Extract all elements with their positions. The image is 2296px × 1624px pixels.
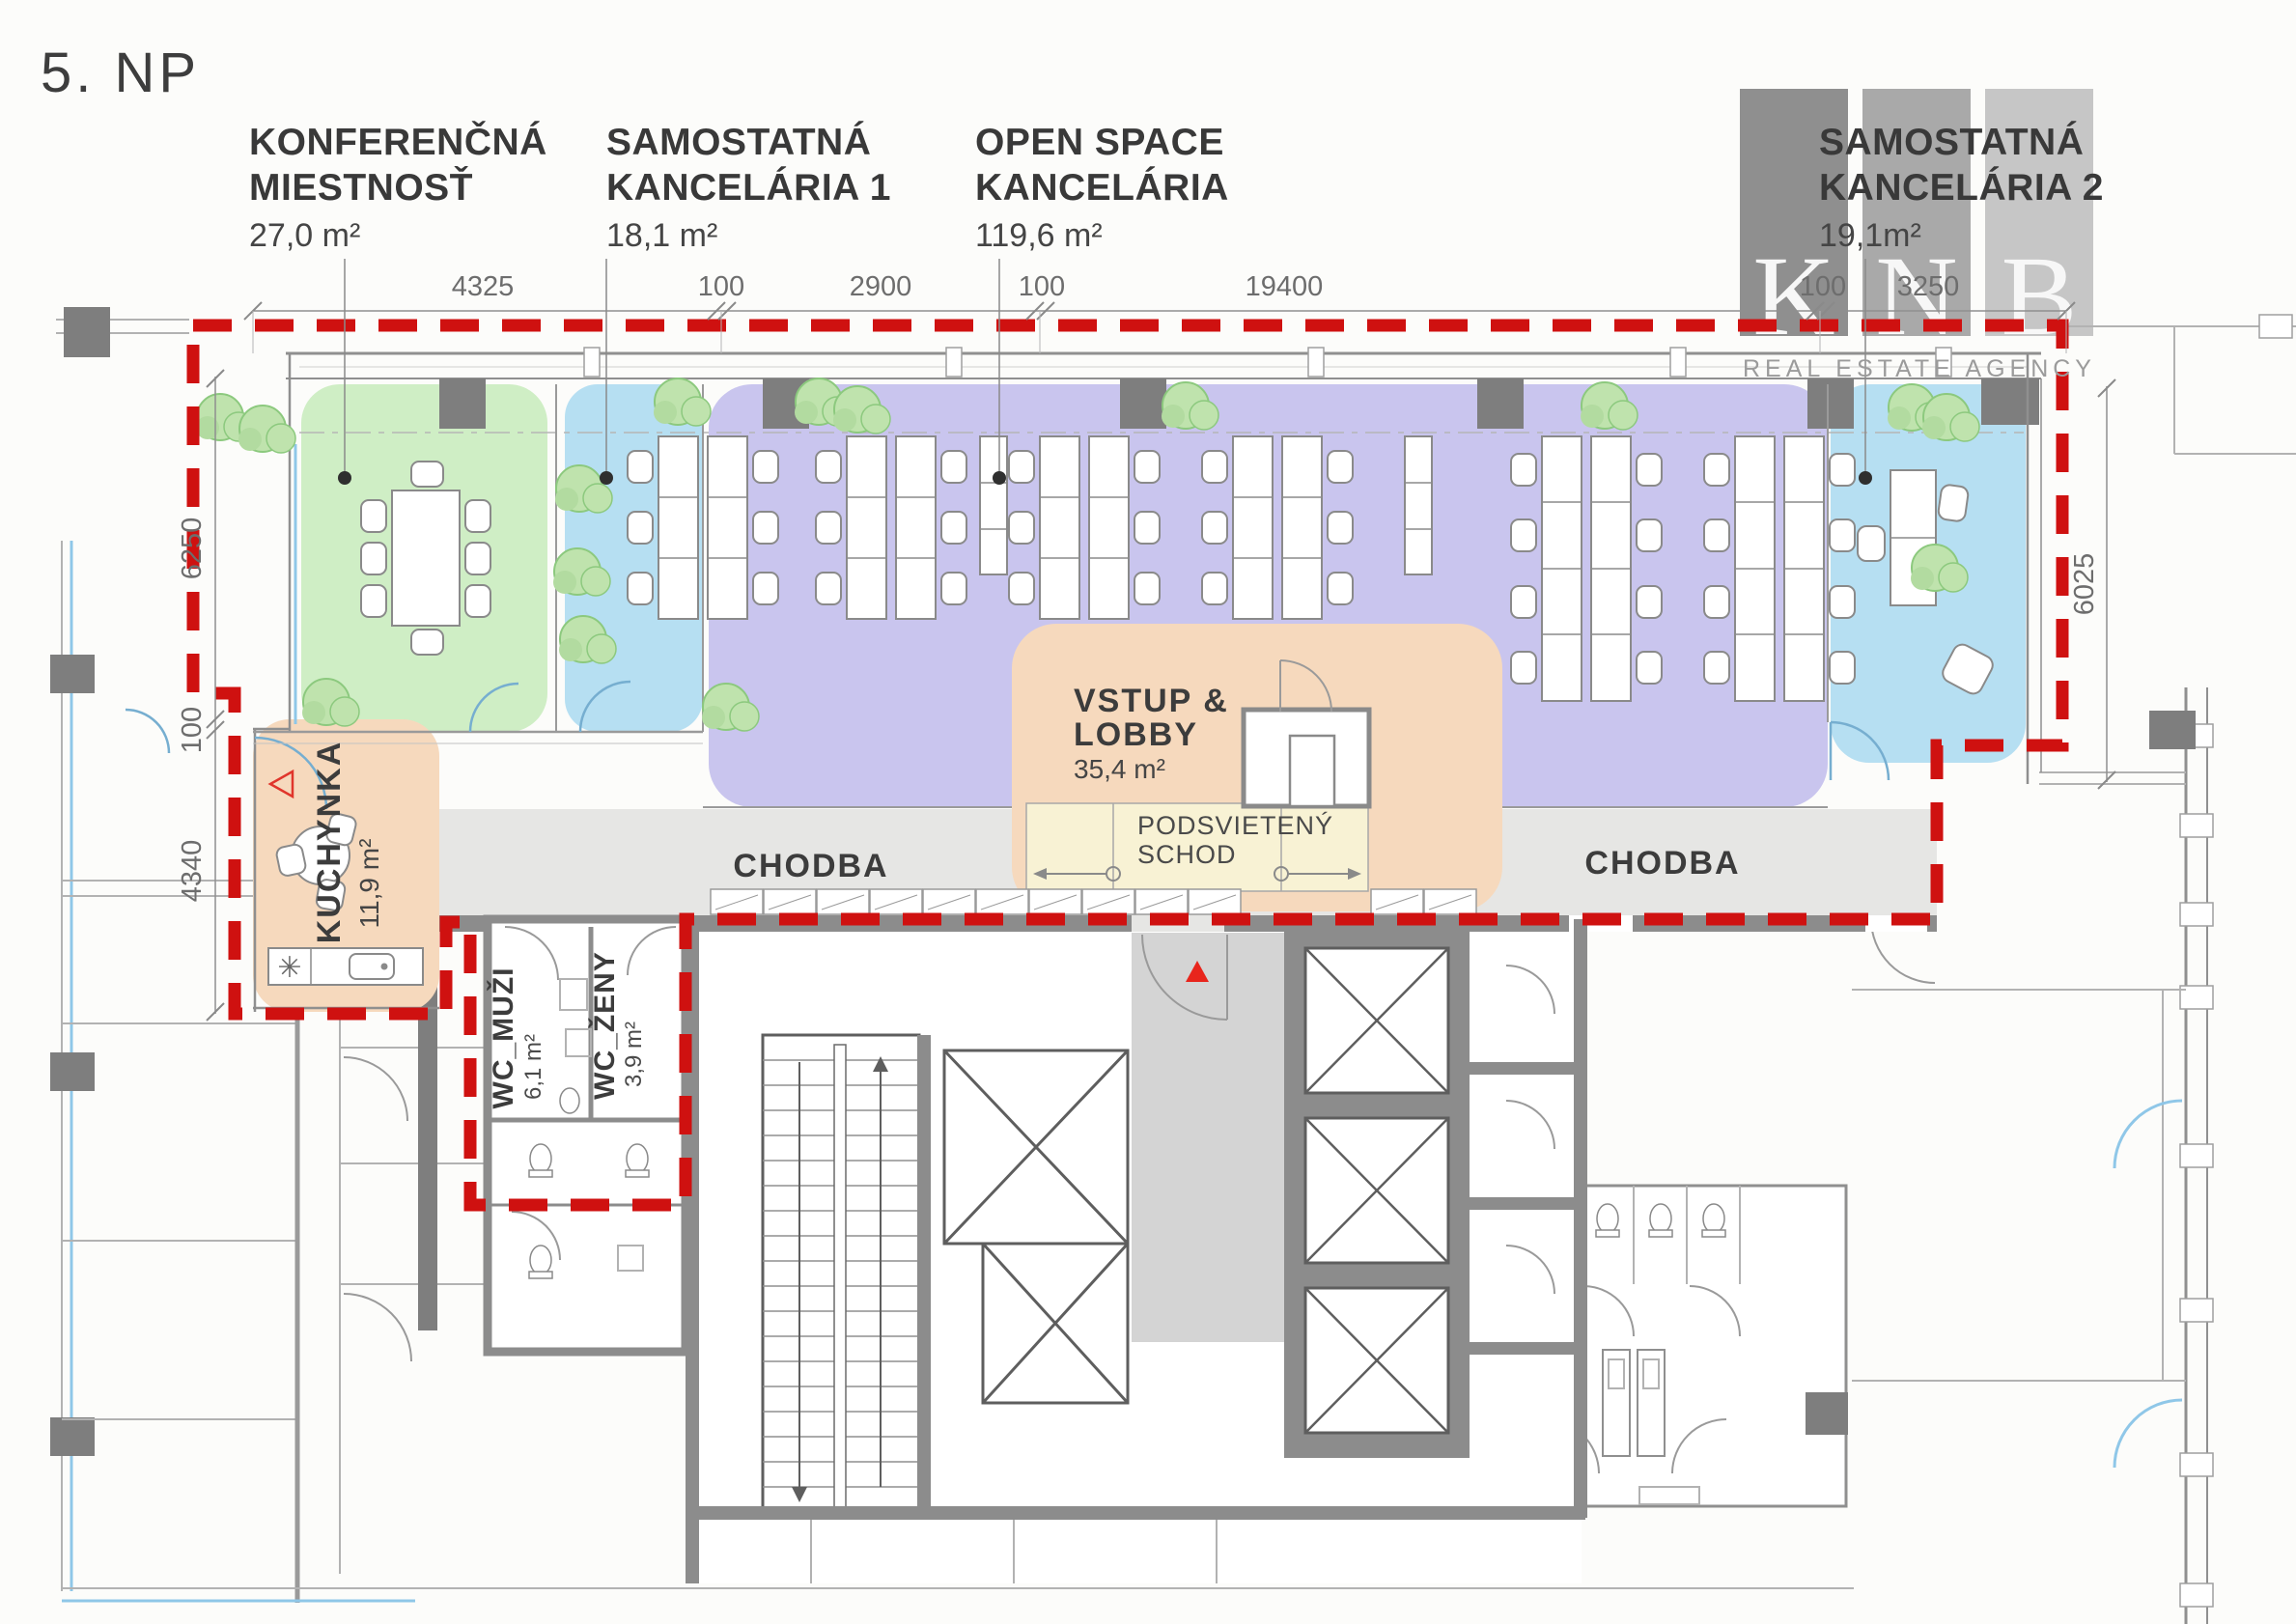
corridor-label-left: CHODBA: [733, 848, 888, 884]
lobby-area: 35,4 m²: [1074, 754, 1165, 784]
room-label-line1: SAMOSTATNÁ: [1819, 121, 2084, 163]
room-label-line2: KANCELÁRIA 1: [606, 166, 891, 209]
dim-left-1: 6250: [177, 518, 208, 580]
room-label-area: 119,6 m²: [975, 217, 1103, 254]
room-label-area: 27,0 m²: [249, 217, 360, 254]
dim-top-2: 100: [698, 271, 744, 302]
page-title: 5. NP: [41, 42, 200, 104]
dim-left-3: 4340: [177, 840, 208, 903]
room-label-area: 18,1 m²: [606, 217, 717, 254]
room-label-line1: SAMOSTATNÁ: [606, 121, 871, 163]
dim-top-4: 100: [1019, 271, 1065, 302]
core-side-rooms: [1470, 919, 1587, 1518]
corridor-label-right: CHODBA: [1584, 845, 1740, 882]
wc-men-area: 6,1 m²: [520, 1034, 546, 1100]
floorplan-page: K N B: [0, 0, 2296, 1624]
room-label-area: 19,1m²: [1819, 217, 1921, 254]
cabinet-strip: [1405, 436, 1432, 574]
dim-top-3: 2900: [850, 271, 912, 302]
dim-left-2: 100: [177, 707, 208, 753]
dim-top-6: 100: [1800, 271, 1846, 302]
room-label-line2: MIESTNOSŤ: [249, 166, 473, 209]
dim-top-5: 19400: [1246, 271, 1324, 302]
wc-men-label: WC_MUŽI: [487, 967, 519, 1109]
step-label-line1: PODSVIETENÝ: [1137, 811, 1333, 840]
lobby-label-line2: LOBBY: [1074, 716, 1198, 753]
elevator-lobby: [1132, 933, 1284, 1342]
floorplan-svg: K N B: [0, 0, 2296, 1624]
room-label-line2: KANCELÁRIA 2: [1819, 166, 2104, 209]
room-label-line1: OPEN SPACE: [975, 122, 1224, 163]
elevators: [1284, 919, 1470, 1458]
dim-top-1: 4325: [452, 271, 515, 302]
stairwell: [763, 1035, 919, 1518]
kitchen-label: KUCHYNKA: [311, 741, 348, 944]
lobby-label-line1: VSTUP &: [1074, 683, 1229, 719]
wc-women-label: WC_ŽENY: [588, 951, 621, 1100]
cabinet-strip: [980, 436, 1007, 574]
dim-top-7: 3250: [1897, 271, 1960, 302]
kitchen-area: 11,9 m²: [354, 839, 384, 929]
dim-right-1: 6025: [2069, 553, 2100, 616]
step-label-line2: SCHOD: [1137, 840, 1237, 869]
room-label-line1: KONFERENČNÁ: [249, 120, 547, 163]
room-label-line2: KANCELÁRIA: [975, 166, 1229, 209]
stove-icon: ✳: [277, 952, 301, 984]
wc-women-area: 3,9 m²: [621, 1022, 647, 1087]
logo-tagline: REAL ESTATE AGENCY: [1743, 355, 2096, 382]
